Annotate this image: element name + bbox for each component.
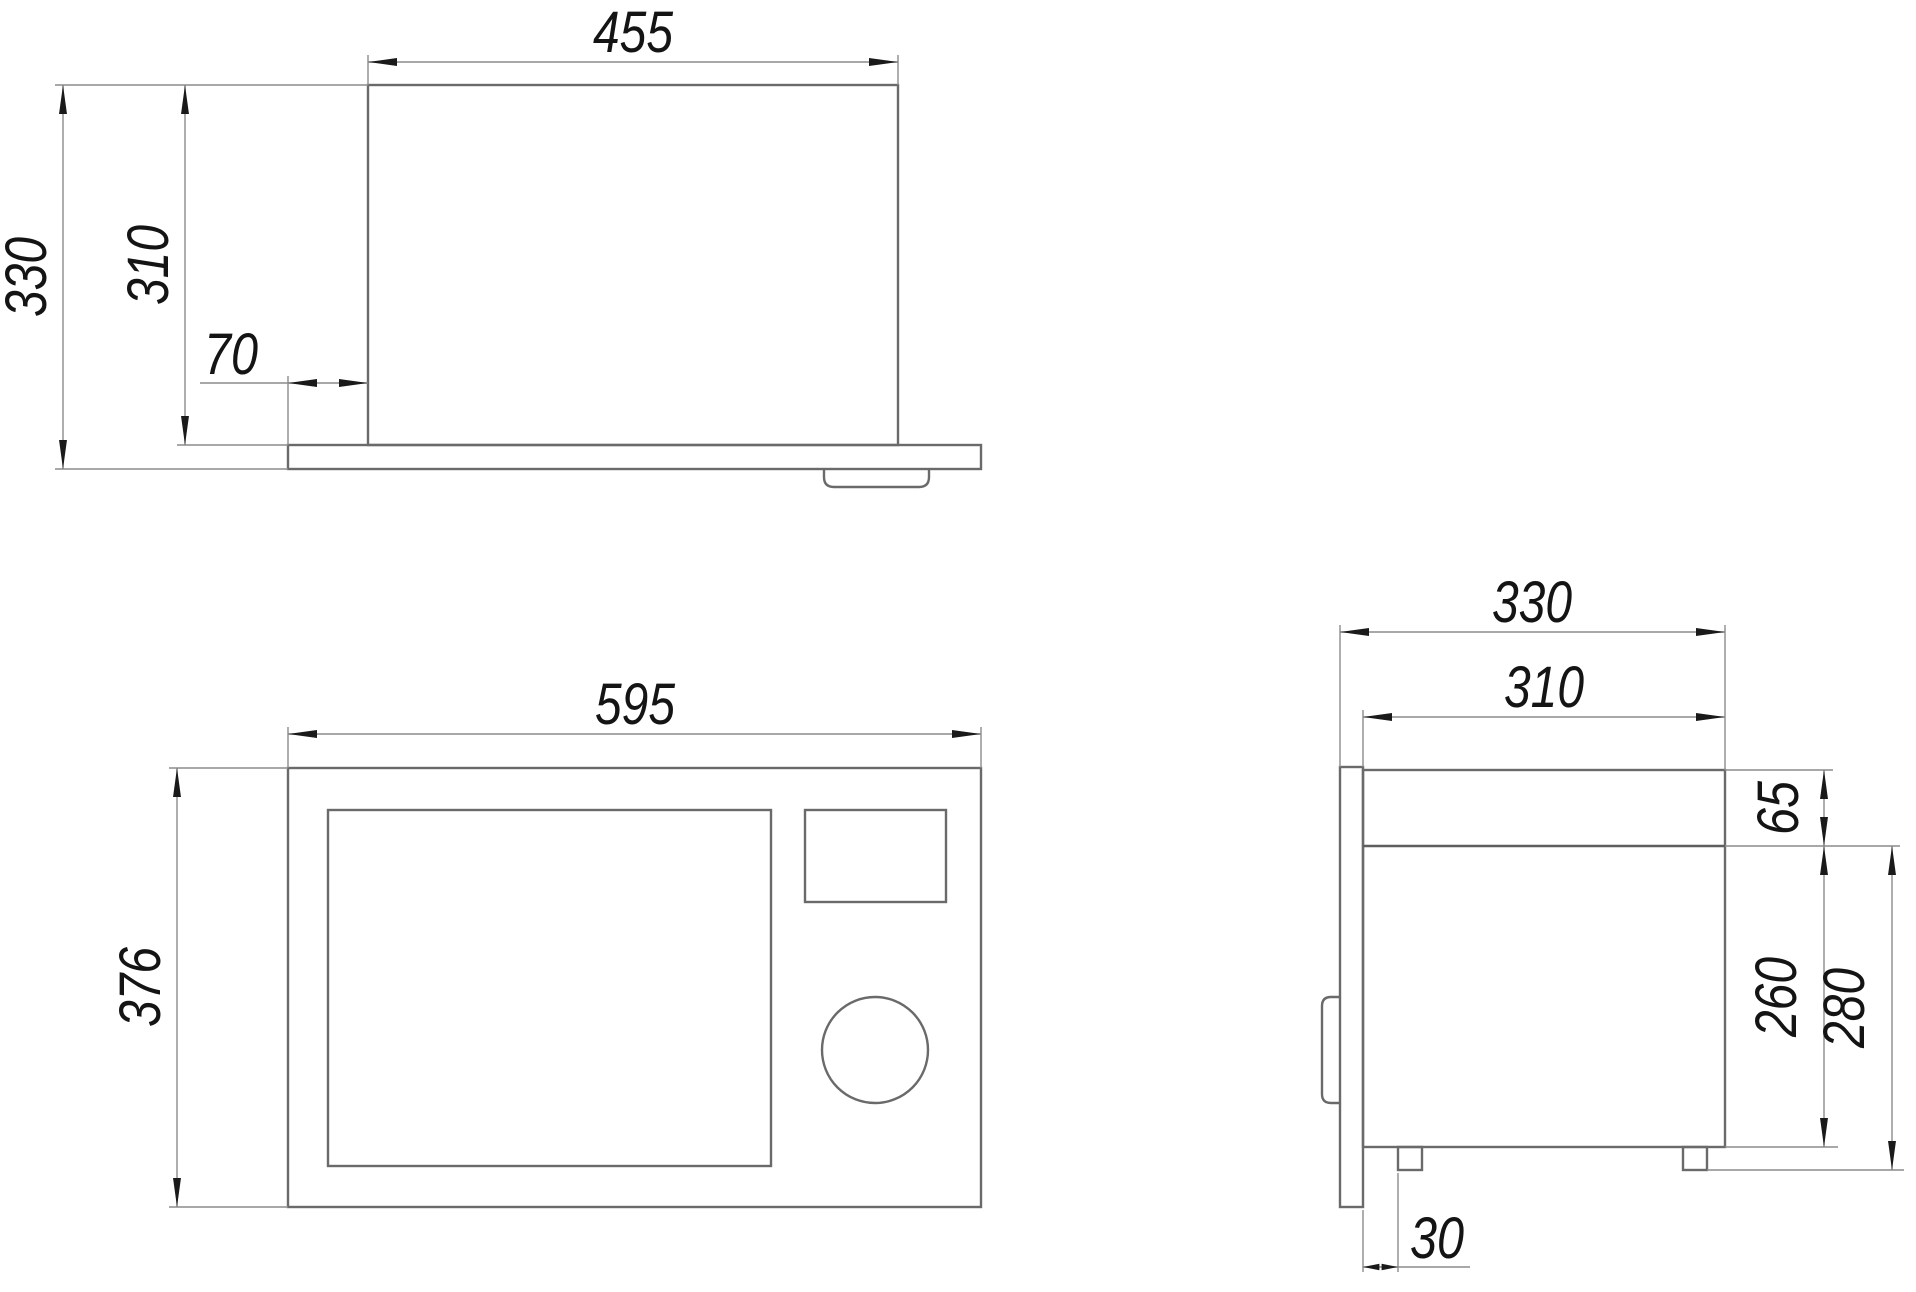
top-view-body-outline [368,85,898,445]
front-view-display [805,810,946,902]
dim-label-side-foot-setback: 30 [1410,1206,1464,1271]
front-view-knob [822,997,928,1103]
top-view-front-frame-outline [288,445,981,469]
side-view-front-foot [1398,1147,1422,1170]
dim-label-side-depth-body: 310 [1504,655,1584,720]
front-view-outline [288,768,981,1207]
dimension-top-overhang: 70 [200,322,368,445]
side-view-front-frame [1340,767,1363,1207]
dim-label-top-depth-body: 310 [116,225,181,305]
dim-label-side-front-height-with-feet: 280 [1812,968,1877,1049]
side-view-knob-profile [1322,997,1340,1103]
dim-label-front-width: 595 [595,672,676,737]
side-view-rear-foot [1683,1147,1707,1170]
microwave-dimension-drawing: 455 330 310 70 [0,0,1916,1292]
top-view-knob-outline [824,469,929,487]
dimension-side-top-offset: 65 [1725,770,1900,846]
dim-label-side-top-offset: 65 [1746,780,1811,835]
dimension-front-width: 595 [288,672,981,768]
dimension-top-width: 455 [368,0,898,85]
dim-label-top-depth-total: 330 [0,237,59,317]
dim-label-front-height: 376 [108,946,173,1027]
side-view-body-outline [1363,770,1725,1147]
dim-label-top-overhang: 70 [204,322,258,387]
top-view: 455 330 310 70 [0,0,981,487]
dim-label-top-width: 455 [593,0,674,65]
dimension-front-height: 376 [108,768,288,1207]
front-view-door-window [328,810,771,1166]
technical-drawing-page: 455 330 310 70 [0,0,1916,1292]
dimension-side-depth-body: 310 [1363,655,1725,767]
dim-label-side-front-height: 260 [1744,957,1809,1038]
front-view: 595 376 [108,672,981,1207]
side-view: 330 310 65 260 280 [1322,570,1904,1272]
dim-label-side-depth-total: 330 [1492,570,1572,635]
dimension-top-depth-total: 330 [0,85,368,469]
dimension-side-foot-setback: 30 [1363,1173,1470,1272]
dimension-top-depth-body: 310 [116,85,288,445]
